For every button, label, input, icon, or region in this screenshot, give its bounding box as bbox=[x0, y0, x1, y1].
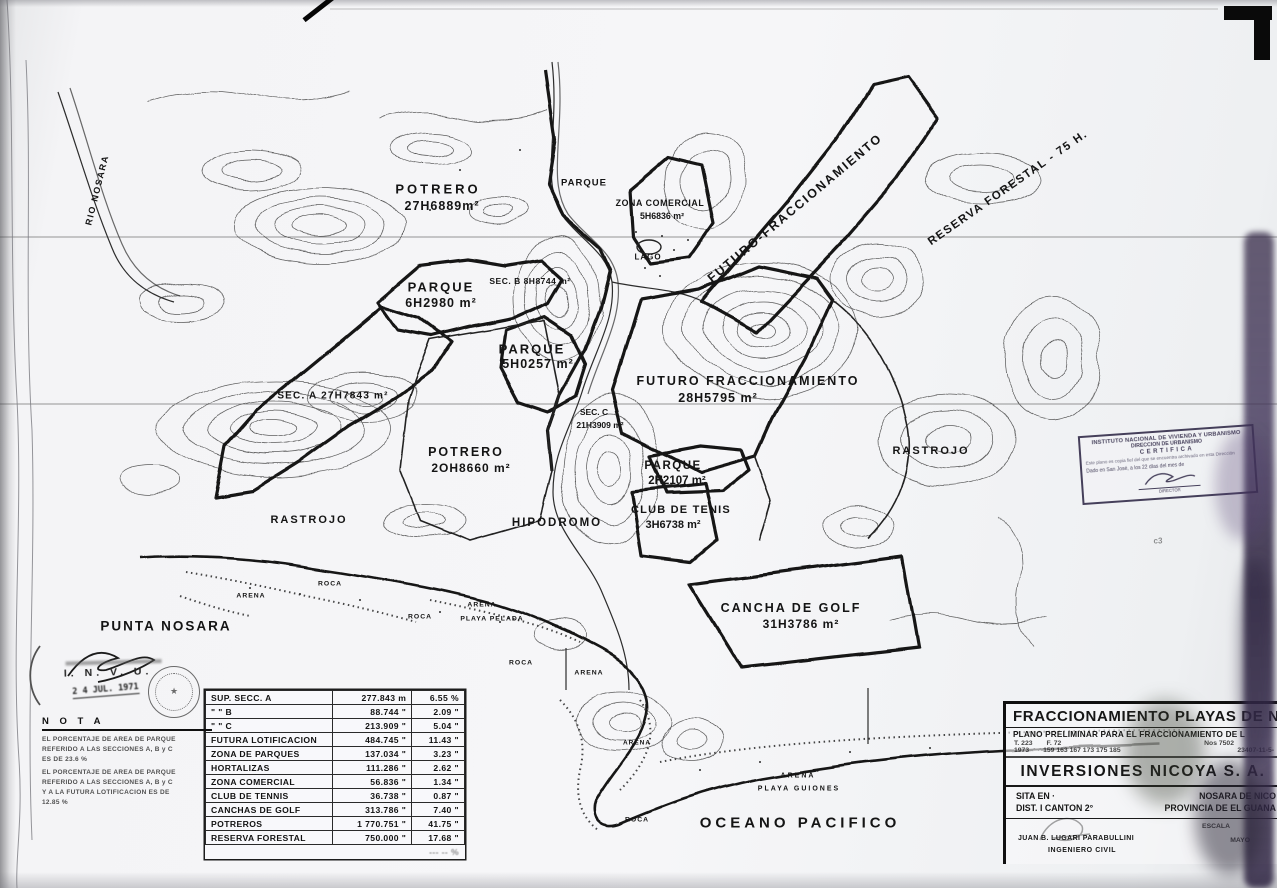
label-hipodromo: HIPODROMO bbox=[512, 517, 602, 529]
label-roca-4: ROCA bbox=[625, 817, 649, 824]
label-punta-nosara: PUNTA NOSARA bbox=[100, 619, 231, 634]
sita-label: SITA EN · bbox=[1016, 791, 1055, 801]
label-parque-top: PARQUE bbox=[561, 178, 607, 189]
label-potrero1-area: 27H6889m² bbox=[404, 199, 479, 213]
label-parque6-area: 6H2980 m² bbox=[405, 296, 477, 310]
label-parque2-name: PARQUE bbox=[644, 460, 701, 472]
sita-value: NOSARA DE NICO bbox=[1199, 791, 1276, 801]
provincia-value: PROVINCIA DE EL GUANA bbox=[1165, 803, 1276, 813]
label-mark-c3: c3 bbox=[1154, 537, 1163, 546]
table-row: SUP. SECC. A277.843 m6.55 % bbox=[206, 691, 465, 705]
escala-label: ESCALA bbox=[1202, 823, 1230, 830]
label-rastrojo-right: RASTROJO bbox=[892, 445, 969, 457]
label-arena-3: ARENA bbox=[574, 670, 603, 677]
nota-line: REFERIDO A LAS SECCIONES A, B y C bbox=[42, 745, 212, 755]
label-arena-1: ARENA bbox=[236, 593, 265, 600]
table-row-partial: --- -- % bbox=[206, 845, 465, 859]
label-club-tenis-name: CLUB DE TENIS bbox=[631, 504, 731, 516]
label-playa-pelada: PLAYA PELADA bbox=[460, 616, 523, 623]
nota-line: EL PORCENTAJE DE AREA DE PARQUE bbox=[42, 735, 212, 745]
nota-line: 12.85 % bbox=[42, 798, 212, 808]
certification-stamp: INSTITUTO NACIONAL DE VIVIENDA Y URBANIS… bbox=[1078, 424, 1258, 505]
label-zona-comercial-name: ZONA COMERCIAL bbox=[616, 198, 705, 208]
registry-references: T. 223 F. 72 Nos 7502 1973 159 163 167 1… bbox=[1006, 740, 1277, 758]
label-roca-2: ROCA bbox=[408, 614, 432, 621]
label-futuro28-area: 28H5795 m² bbox=[678, 391, 758, 405]
label-roca-1: ROCA bbox=[318, 581, 342, 588]
distrito-label: DIST. I CANTON 2° bbox=[1016, 803, 1093, 813]
label-arena-4: ARENA bbox=[623, 740, 651, 747]
label-sec-a: SEC. A 27H7843 m² bbox=[277, 391, 388, 402]
title-block: FRACCIONAMIENTO PLAYAS DE NOSA PLANO PRE… bbox=[1003, 701, 1277, 864]
lago-and-specks bbox=[249, 149, 931, 771]
label-potrero20-area: 2OH8660 m² bbox=[431, 461, 510, 475]
table-row: " " B88.744 "2.09 " bbox=[206, 705, 465, 719]
location-rows: SITA EN · NOSARA DE NICO DIST. I CANTON … bbox=[1006, 787, 1277, 819]
fecha-label: MAYO bbox=[1230, 837, 1250, 844]
nota-line: Y A LA FUTURA LOTIFICACION ES DE bbox=[42, 788, 212, 798]
label-futuro28-name: FUTURO FRACCIONAMIENTO bbox=[637, 374, 860, 388]
ref-folio: F. 72 bbox=[1047, 740, 1062, 747]
project-title: FRACCIONAMIENTO PLAYAS DE NOSA bbox=[1006, 704, 1277, 728]
table-row: CANCHAS DE GOLF313.786 "7.40 " bbox=[206, 803, 465, 817]
label-parque6-name: PARQUE bbox=[408, 280, 475, 295]
label-oceano-pacifico: OCEANO PACIFICO bbox=[700, 815, 901, 832]
label-rastrojo-left: RASTROJO bbox=[270, 514, 347, 526]
table-row: CLUB DE TENNIS36.738 "0.87 " bbox=[206, 789, 465, 803]
label-arena-5: ARENA bbox=[781, 773, 816, 780]
table-row: HORTALIZAS111.286 "2.62 " bbox=[206, 761, 465, 775]
round-seal-stamp bbox=[148, 666, 200, 718]
areas-summary-table: SUP. SECC. A277.843 m6.55 % " " B88.744 … bbox=[205, 690, 465, 859]
ref-year: 1973 bbox=[1014, 747, 1029, 754]
table-row: ZONA DE PARQUES137.034 "3.23 " bbox=[206, 747, 465, 761]
label-sec-c-name: SEC. C bbox=[580, 407, 608, 417]
ref-tomo: T. 223 bbox=[1014, 740, 1033, 747]
label-potrero20-name: POTRERO bbox=[428, 445, 504, 459]
ref-nos: Nos 7502 bbox=[1204, 740, 1234, 747]
table-row: " " C213.909 "5.04 " bbox=[206, 719, 465, 733]
label-sec-b: SEC. B 8H8744 m² bbox=[489, 276, 570, 286]
ref-number: 23407-11-5- bbox=[1237, 747, 1274, 754]
nota-block: N O T A EL PORCENTAJE DE AREA DE PARQUE … bbox=[42, 716, 212, 808]
ref-sheets: 159 163 167 173 175 185 bbox=[1043, 747, 1120, 754]
label-playa-guiones: PLAYA GUIONES bbox=[758, 786, 840, 793]
engineer-name: JUAN B. LUGARI PARABULLINI bbox=[1018, 835, 1134, 842]
label-zona-comercial-area: 5H6836 m² bbox=[640, 211, 684, 221]
label-potrero1-name: POTRERO bbox=[395, 182, 480, 197]
nota-title: N O T A bbox=[42, 716, 212, 731]
paper-wrinkles bbox=[7, 0, 40, 888]
label-lago: LAGO bbox=[634, 253, 661, 262]
label-arena-2: ARENA bbox=[467, 602, 496, 609]
label-roca-3: ROCA bbox=[509, 660, 533, 667]
table-row: FUTURA LOTIFICACION484.745 "11.43 " bbox=[206, 733, 465, 747]
scanned-map-page: RIO NOSARA POTRERO 27H6889m² PARQUE ZONA… bbox=[0, 0, 1277, 888]
nota-line: ES DE 23.6 % bbox=[42, 755, 212, 765]
signature-area: JUAN B. LUGARI PARABULLINI INGENIERO CIV… bbox=[1006, 819, 1277, 864]
table-row: POTREROS1 770.751 "41.75 " bbox=[206, 817, 465, 831]
label-club-tenis-area: 3H6738 m² bbox=[645, 519, 700, 531]
company-name: INVERSIONES NICOYA S. A. bbox=[1006, 758, 1277, 787]
parcel-boundaries bbox=[214, 70, 938, 668]
nota-line: REFERIDO A LAS SECCIONES A, B y C bbox=[42, 778, 212, 788]
nota-line: EL PORCENTAJE DE AREA DE PARQUE bbox=[42, 768, 212, 778]
table-row: RESERVA FORESTAL750.000 "17.68 " bbox=[206, 831, 465, 845]
label-cancha-golf-area: 31H3786 m² bbox=[763, 617, 840, 631]
engineer-title: INGENIERO CIVIL bbox=[1048, 847, 1116, 854]
project-subtitle: PLANO PRELIMINAR PARA EL FRACCIONAMIENTO… bbox=[1006, 728, 1277, 740]
label-sec-c-area: 21H3909 m² bbox=[576, 420, 623, 430]
label-parque5-name: PARQUE bbox=[499, 342, 566, 357]
label-cancha-golf-name: CANCHA DE GOLF bbox=[721, 601, 862, 615]
label-parque2-area: 2H2107 m² bbox=[648, 475, 706, 487]
label-parque5-area: 5H0257 m² bbox=[502, 357, 574, 371]
table-row: ZONA COMERCIAL56.836 "1.34 " bbox=[206, 775, 465, 789]
